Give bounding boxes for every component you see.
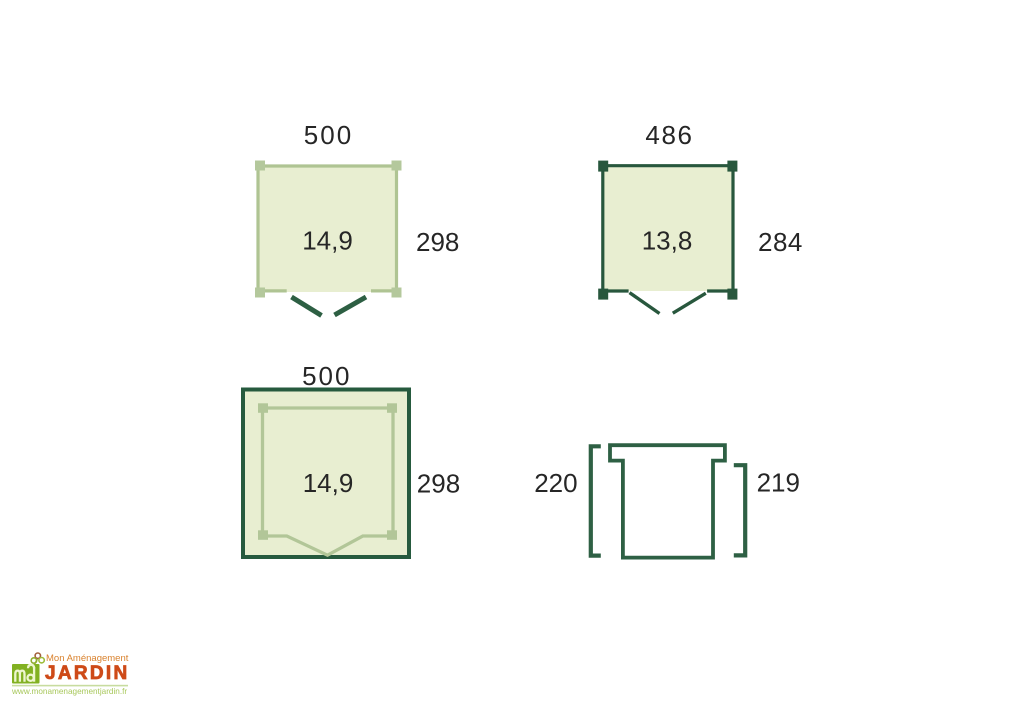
svg-text:284: 284 xyxy=(758,227,803,257)
svg-text:14,9: 14,9 xyxy=(303,468,354,498)
svg-text:486: 486 xyxy=(645,120,693,150)
svg-text:500: 500 xyxy=(304,120,353,150)
svg-text:500: 500 xyxy=(302,361,351,391)
svg-text:14,9: 14,9 xyxy=(302,226,353,256)
svg-text:298: 298 xyxy=(416,227,459,257)
svg-text:220: 220 xyxy=(534,468,577,498)
svg-text:219: 219 xyxy=(757,468,800,498)
svg-text:298: 298 xyxy=(417,469,460,499)
svg-text:13,8: 13,8 xyxy=(642,226,693,256)
svg-text:JARDIN: JARDIN xyxy=(45,663,130,684)
svg-text:www.monamenagementjardin.fr: www.monamenagementjardin.fr xyxy=(11,687,127,696)
